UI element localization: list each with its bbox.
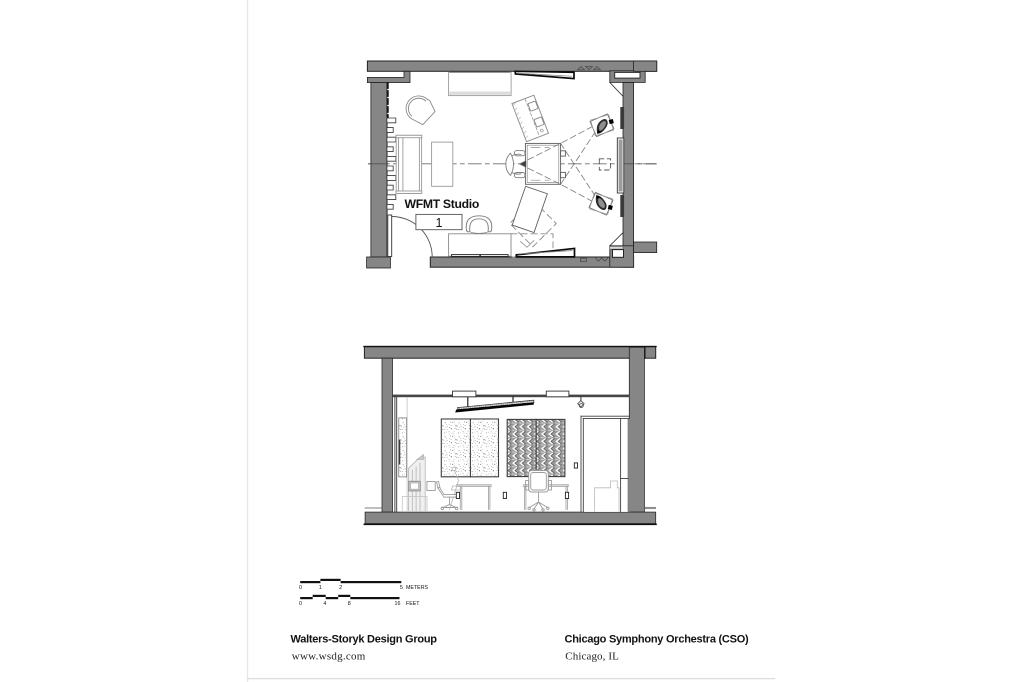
svg-text:Chicago, IL: Chicago, IL xyxy=(565,650,619,662)
svg-text:2: 2 xyxy=(339,585,342,591)
svg-text:5: 5 xyxy=(400,585,403,591)
svg-text:Walters-Storyk Design Group: Walters-Storyk Design Group xyxy=(291,633,438,645)
svg-text:16: 16 xyxy=(395,601,401,607)
svg-text:1: 1 xyxy=(436,216,443,230)
svg-text:METERS: METERS xyxy=(406,585,429,591)
svg-text:0: 0 xyxy=(299,601,302,607)
svg-text:8: 8 xyxy=(348,601,351,607)
svg-text:www.wsdg.com: www.wsdg.com xyxy=(292,650,366,662)
svg-text:Chicago Symphony Orchestra (CS: Chicago Symphony Orchestra (CSO) xyxy=(565,633,750,645)
svg-text:WFMT Studio: WFMT Studio xyxy=(405,197,480,211)
svg-text:FEET: FEET xyxy=(406,601,420,607)
svg-text:0: 0 xyxy=(299,585,302,591)
svg-text:4: 4 xyxy=(323,601,326,607)
svg-text:1: 1 xyxy=(319,585,322,591)
